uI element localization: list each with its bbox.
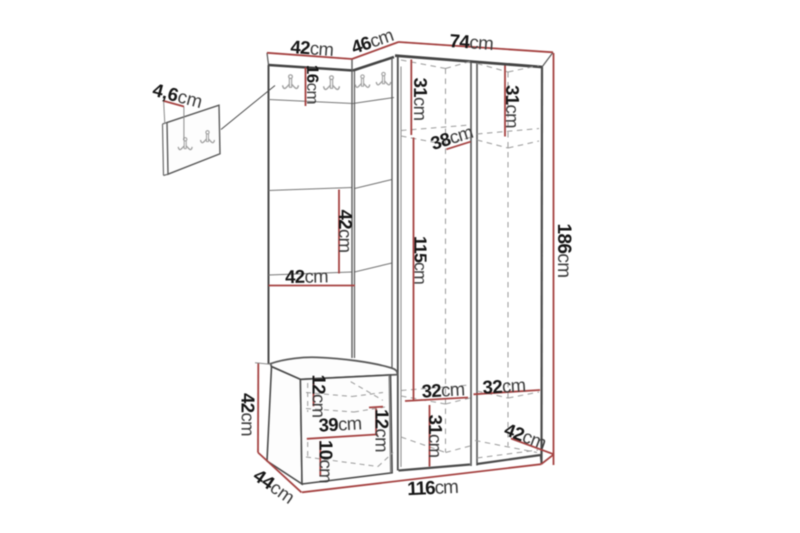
svg-text:10cm: 10cm	[316, 440, 337, 483]
svg-text:42cm: 42cm	[290, 36, 334, 60]
svg-text:12cm: 12cm	[372, 409, 393, 452]
svg-text:186cm: 186cm	[554, 223, 575, 277]
svg-text:32cm: 32cm	[482, 374, 526, 398]
svg-text:115cm: 115cm	[411, 236, 431, 284]
svg-text:12cm: 12cm	[309, 375, 330, 418]
svg-text:39cm: 39cm	[318, 412, 362, 435]
svg-text:32cm: 32cm	[421, 378, 465, 401]
svg-text:31cm: 31cm	[503, 85, 524, 128]
svg-text:74cm: 74cm	[449, 29, 494, 53]
svg-text:31cm: 31cm	[425, 415, 446, 458]
svg-text:116cm: 116cm	[407, 476, 459, 499]
svg-text:31cm: 31cm	[411, 78, 432, 121]
svg-text:42cm: 42cm	[336, 210, 357, 253]
svg-text:42cm: 42cm	[238, 393, 259, 436]
svg-text:42cm: 42cm	[285, 265, 328, 287]
svg-text:16cm: 16cm	[304, 65, 323, 105]
